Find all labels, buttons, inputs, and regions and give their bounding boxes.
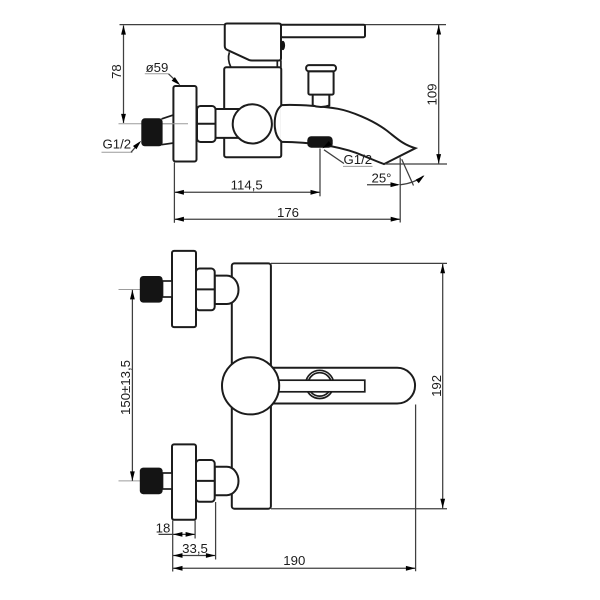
svg-text:ø59: ø59 (146, 60, 169, 75)
svg-text:18: 18 (156, 520, 171, 535)
svg-text:192: 192 (429, 375, 444, 397)
svg-text:G1/2: G1/2 (344, 152, 373, 167)
svg-text:G1/2: G1/2 (103, 137, 132, 152)
svg-text:25°: 25° (372, 171, 392, 186)
svg-text:33,5: 33,5 (182, 541, 208, 556)
svg-text:78: 78 (109, 64, 124, 79)
svg-text:190: 190 (283, 553, 305, 568)
svg-text:150±13,5: 150±13,5 (118, 360, 133, 415)
svg-text:176: 176 (277, 205, 299, 220)
svg-text:114,5: 114,5 (231, 177, 263, 192)
svg-text:109: 109 (425, 83, 440, 105)
